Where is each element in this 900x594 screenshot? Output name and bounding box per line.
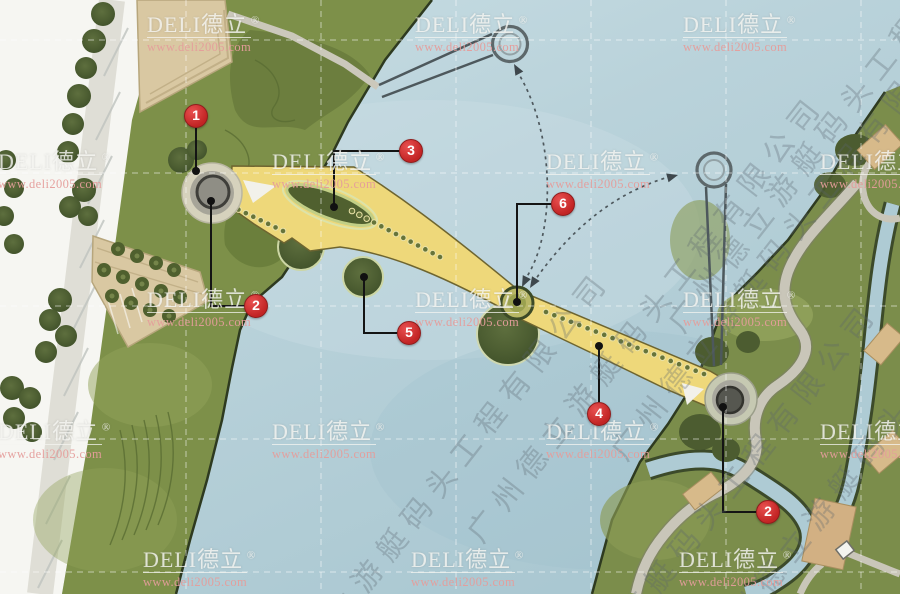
callout-badge-2-1: 2 (244, 294, 268, 318)
planter-dot (543, 309, 549, 315)
planter-dot (626, 342, 632, 348)
leader-anchor-3 (330, 203, 338, 211)
planter-dot (408, 239, 414, 245)
planter-dot (618, 339, 624, 345)
leader-anchor-2 (207, 197, 215, 205)
callout-badge-2-6: 2 (756, 500, 780, 524)
planter-dot (560, 316, 566, 322)
plaza-right (705, 373, 757, 425)
planter-dot (393, 231, 399, 237)
leader-anchor-2 (719, 403, 727, 411)
leader-anchor-6 (513, 298, 521, 306)
callout-badge-5-4: 5 (397, 321, 421, 345)
leader-anchor-1 (192, 167, 200, 175)
planter-dot (437, 254, 443, 260)
planter-dot (693, 368, 699, 374)
planter-dot (258, 217, 264, 223)
planter-dot (379, 224, 385, 230)
planter-dot (568, 319, 574, 325)
planter-dot (371, 220, 377, 226)
planter-dot (243, 210, 249, 216)
leader-anchor-4 (595, 342, 603, 350)
planter-dot (643, 348, 649, 354)
planter-dot (593, 329, 599, 335)
planter-dot (676, 361, 682, 367)
planter-dot (668, 358, 674, 364)
planter-dot (610, 335, 616, 341)
site-plan: 广州德立游艇码头工程有限公司广州德立游艇码头工程有限公司广州德立游艇码头工程有限… (0, 0, 900, 594)
planter-dot (585, 326, 591, 332)
planter-dot (701, 371, 707, 377)
planter-dot (250, 214, 256, 220)
callout-badge-3-2: 3 (399, 139, 423, 163)
planter-dot (601, 332, 607, 338)
planter-dot (401, 235, 407, 241)
planter-dot (265, 221, 271, 227)
planter-dot (273, 225, 279, 231)
planter-dot (386, 227, 392, 233)
planter-dot (415, 243, 421, 249)
planter-dot (685, 365, 691, 371)
planter-dot (349, 208, 355, 214)
callout-badge-4-3: 4 (587, 402, 611, 426)
planter-dot (280, 228, 286, 234)
planter-dot (660, 355, 666, 361)
planter-dot (357, 212, 363, 218)
callout-badge-6-5: 6 (551, 192, 575, 216)
callout-badge-1-0: 1 (184, 104, 208, 128)
planter-dot (423, 247, 429, 253)
planter-dot (576, 322, 582, 328)
leader-anchor-5 (360, 273, 368, 281)
planter-dot (430, 250, 436, 256)
planter-dot (635, 345, 641, 351)
planter-dot (364, 216, 370, 222)
planter-dot (651, 352, 657, 358)
planter-dot (552, 312, 558, 318)
